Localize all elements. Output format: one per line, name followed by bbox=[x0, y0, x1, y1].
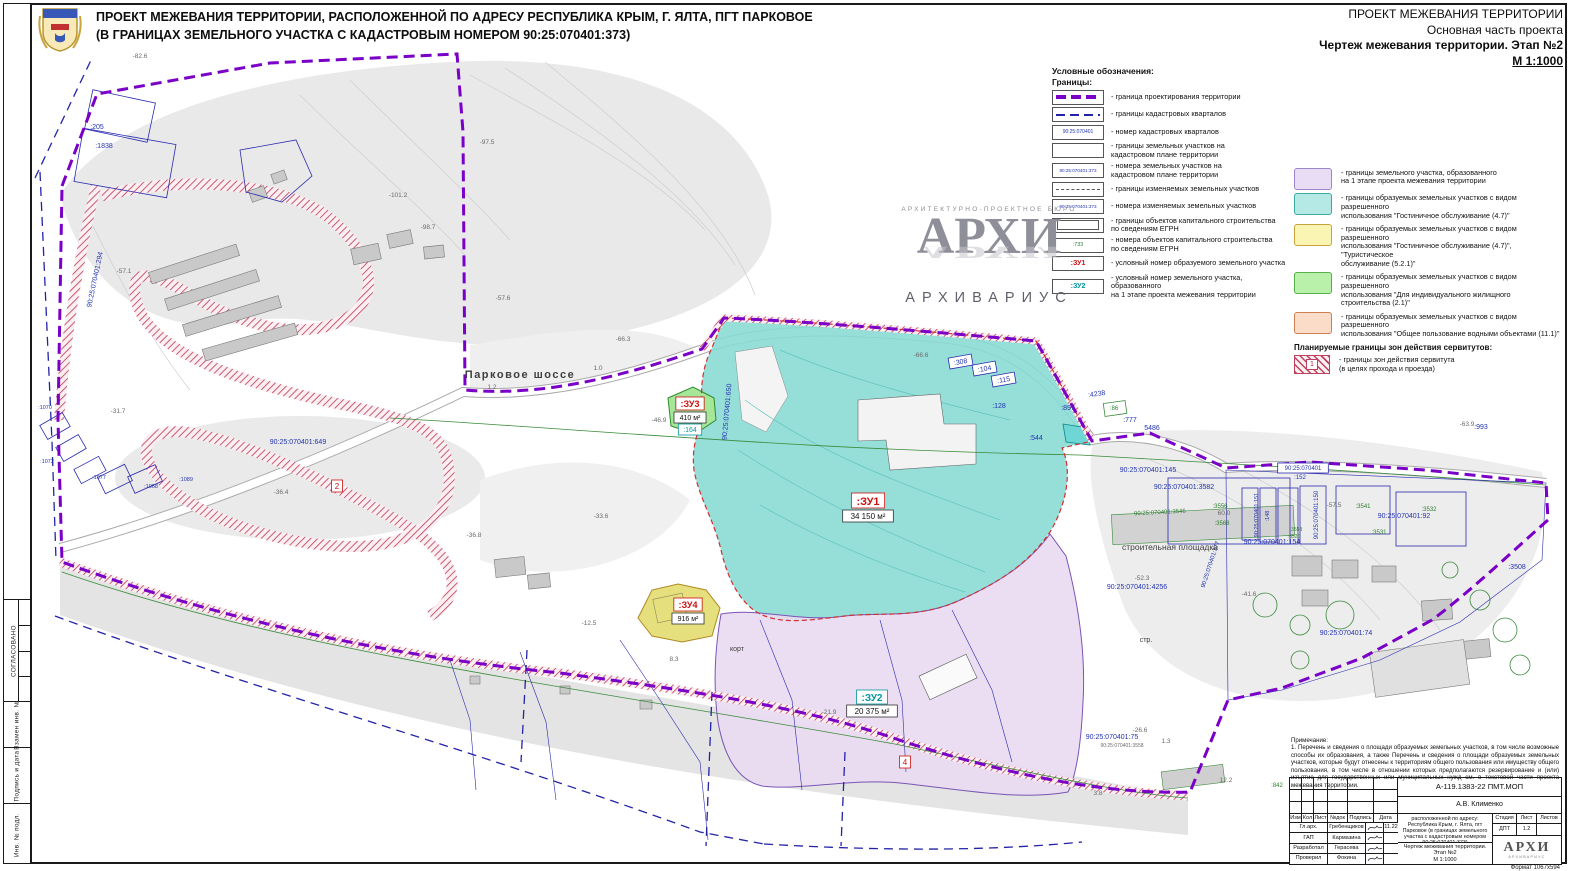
legend-symbol-pdash bbox=[1052, 90, 1104, 105]
map-label: 90:25:070401:74 bbox=[1320, 630, 1373, 637]
legend-area-swatch bbox=[1294, 168, 1332, 190]
map-canvas: :205:183890:25:070401:649:308:104:115:12… bbox=[31, 5, 1566, 862]
format-label: Формат 1067х594 bbox=[1511, 865, 1560, 871]
stamp-empty-cell bbox=[1328, 790, 1348, 802]
strip-label-inv-num: Инв. № подл. bbox=[14, 812, 21, 856]
legend-areas: - границы земельного участка, образованн… bbox=[1294, 164, 1560, 378]
strip-label-approved: СОГЛАСОВАНО bbox=[10, 625, 17, 677]
map-label: 90:25:070401:92 bbox=[1378, 513, 1431, 520]
legend-line-item: - граница проектирования территории bbox=[1052, 90, 1290, 105]
map-label: -31.7 bbox=[111, 408, 126, 415]
map-label: 90:25:070401:154 bbox=[1244, 539, 1301, 546]
strip-cell-inv-num: Инв. № подл. bbox=[4, 803, 30, 865]
legend-line-label: - границы объектов капитального строител… bbox=[1111, 217, 1276, 234]
strip-label-sign-date: Подпись и дата bbox=[14, 750, 21, 801]
stamp-empty-cell bbox=[1374, 790, 1398, 802]
legend-line-item: :ЗУ1- условный номер образуемого земельн… bbox=[1052, 256, 1290, 271]
stamp-empty-cell bbox=[1348, 790, 1374, 802]
legend-area-swatch bbox=[1294, 312, 1332, 334]
legend-symbol-txt: 90:25:070401:373 bbox=[1052, 199, 1104, 214]
stamp-empty-cell bbox=[1302, 778, 1314, 790]
stamp-name: Кармазина bbox=[1328, 833, 1366, 843]
map-label: стр. bbox=[1140, 637, 1153, 644]
map-label: -63.9 bbox=[1460, 421, 1475, 428]
map-label: 1.3 bbox=[1161, 738, 1170, 745]
map-label: :897 bbox=[1061, 405, 1075, 412]
map-label: :3526 bbox=[1288, 534, 1301, 540]
legend-area-item: - границы образуемых земельных участков … bbox=[1294, 193, 1560, 220]
yalta-coat-of-arms bbox=[37, 6, 83, 53]
map-label: :993 bbox=[1474, 424, 1488, 431]
legend-line-label: - условный номер земельного участка, обр… bbox=[1111, 274, 1290, 300]
legend-line-item: - границы кадастровых кварталов bbox=[1052, 107, 1290, 122]
map-label: 410 м² bbox=[680, 415, 701, 422]
stamp-col-header: Изм bbox=[1290, 814, 1302, 823]
stamp-sheet-value: 1.2 bbox=[1517, 824, 1537, 836]
stamp-project: Проект межевания территории, расположенн… bbox=[1398, 814, 1493, 843]
stamp-name: Гребенщиков bbox=[1328, 823, 1366, 833]
stamp-empty-cell bbox=[1314, 790, 1328, 802]
title-left-line1: ПРОЕКТ МЕЖЕВАНИЯ ТЕРРИТОРИИ, РАСПОЛОЖЕНН… bbox=[96, 9, 813, 27]
legend-line-label: - номера земельных участков на кадастров… bbox=[1111, 162, 1222, 179]
strip-label-replace-inv: Взамен инв. № bbox=[14, 700, 21, 749]
map-label: :3532 bbox=[1421, 507, 1437, 513]
map-label: :205 bbox=[90, 124, 104, 131]
map-label: 916 м² bbox=[678, 616, 699, 623]
legend-area-swatch bbox=[1294, 272, 1332, 294]
map-label: -36.8 bbox=[467, 532, 482, 539]
stamp-stage-header: Лист bbox=[1517, 814, 1537, 824]
stamp-date bbox=[1384, 854, 1398, 865]
stamp-date bbox=[1384, 844, 1398, 854]
servitude-zone-number: 1 bbox=[1306, 359, 1318, 370]
map-label: 3.8 bbox=[1093, 790, 1102, 797]
title-right-line3: Чертеж межевания территории. Этап №2 bbox=[1319, 38, 1563, 54]
legend-line-label: - границы кадастровых кварталов bbox=[1111, 110, 1226, 119]
legend-area-item: - границы образуемых земельных участков … bbox=[1294, 224, 1560, 269]
legend-area-swatch bbox=[1294, 224, 1332, 246]
legend-area-label: - границы образуемых земельных участков … bbox=[1341, 193, 1560, 220]
legend-symbol-text: 90:25:070401:373 bbox=[1059, 204, 1096, 209]
stamp-signature bbox=[1366, 833, 1384, 843]
legend-symbol-empty bbox=[1052, 143, 1104, 158]
legend-area-item: - границы образуемых земельных участков … bbox=[1294, 272, 1560, 308]
legend-line-item: - границы объектов капитального строител… bbox=[1052, 217, 1290, 234]
stamp-name: Герасева bbox=[1328, 844, 1366, 854]
legend-line-label: - границы изменяемых земельных участков bbox=[1111, 185, 1259, 194]
map-label: :152 bbox=[1294, 475, 1306, 481]
map-label: -97.5 bbox=[480, 139, 495, 146]
map-label: -12.5 bbox=[582, 620, 597, 627]
title-right-line2: Основная часть проекта bbox=[1319, 23, 1563, 39]
legend-line-item: :ЗУ2- условный номер земельного участка,… bbox=[1052, 274, 1290, 300]
map-label: -41.6 bbox=[1242, 591, 1257, 598]
map-label: -46.9 bbox=[652, 417, 667, 424]
legend-symbol-text: :ЗУ1 bbox=[1071, 260, 1086, 267]
legend-line-label: - номера изменяемых земельных участков bbox=[1111, 202, 1256, 211]
legend-area-label: - границы образуемых земельных участков … bbox=[1341, 224, 1560, 269]
legend-line-item: 90:25:070401:373- номера земельных участ… bbox=[1052, 162, 1290, 179]
map-label: 90:25:070401:3558 bbox=[1100, 743, 1143, 749]
map-label: :148 bbox=[1265, 511, 1271, 522]
stamp-col-header: Подпись bbox=[1348, 814, 1374, 823]
scale-label: М 1:1000 bbox=[1319, 54, 1563, 70]
map-label: :3568 bbox=[1214, 521, 1230, 527]
map-label: :86 bbox=[1110, 406, 1119, 412]
map-label: :1838 bbox=[95, 143, 113, 150]
map-label: 4 bbox=[903, 758, 908, 767]
stamp-empty-cell bbox=[1302, 790, 1314, 802]
stamp-stage-header: Листов bbox=[1537, 814, 1561, 824]
stamp-date bbox=[1384, 833, 1398, 843]
legend-line-item: 90:25:070401:373- номера изменяемых земе… bbox=[1052, 199, 1290, 214]
legend-symbol-text: 90:25:070401:373 bbox=[1059, 168, 1096, 173]
map-label: 8.3 bbox=[669, 656, 678, 663]
map-label: -66.3 bbox=[616, 336, 631, 343]
stamp-logo: АРХИАРХИВАРИУС bbox=[1493, 836, 1561, 864]
map-label: :1089 bbox=[179, 477, 193, 483]
frame-side-strip: СОГЛАСОВАНО Взамен инв. № Подпись и дата… bbox=[3, 3, 31, 864]
legend-symbol-txt: 90:25:070401 bbox=[1052, 125, 1104, 140]
stamp-role: Разработал bbox=[1290, 844, 1328, 854]
map-label: :128 bbox=[992, 403, 1006, 410]
stamp-empty-cell bbox=[1374, 802, 1398, 814]
legend-subtitle: Границы: bbox=[1052, 77, 1290, 88]
stamp-empty-cell bbox=[1328, 802, 1348, 814]
map-label: :3531 bbox=[1371, 530, 1387, 536]
stamp-col-header: №док bbox=[1328, 814, 1348, 823]
map-label: -98.7 bbox=[421, 224, 436, 231]
legend-line-item: - границы изменяемых земельных участков bbox=[1052, 182, 1290, 197]
servitude-swatch: 1 bbox=[1294, 355, 1330, 374]
stamp-empty-cell bbox=[1314, 802, 1328, 814]
stamp-date: 11.22 bbox=[1384, 823, 1398, 833]
map-label: :ЗУ3 bbox=[681, 399, 700, 409]
map-label: :4238 bbox=[1088, 390, 1106, 399]
map-label: корт bbox=[730, 646, 745, 653]
legend-line-item: 90:25:070401- номер кадастровых квартало… bbox=[1052, 125, 1290, 140]
map-label: :164 bbox=[683, 427, 697, 434]
legend-symbol-text: 90:25:070401 bbox=[1063, 129, 1094, 135]
map-label: :ЗУ2 bbox=[862, 693, 883, 704]
stamp-author: А.В. Клименко bbox=[1398, 797, 1561, 814]
map-label: 12.2 bbox=[1220, 777, 1233, 784]
map-label: 1.2 bbox=[487, 384, 496, 391]
map-label: 90:25:070401:75 bbox=[1086, 734, 1139, 741]
legend-lines: Условные обозначения: Границы: - граница… bbox=[1052, 66, 1290, 302]
legend-area-label: - границы земельного участка, образованн… bbox=[1341, 168, 1497, 187]
map-label: :1068 bbox=[144, 484, 158, 490]
map-label: -26.6 bbox=[1133, 727, 1148, 734]
title-right: ПРОЕКТ МЕЖЕВАНИЯ ТЕРРИТОРИИ Основная час… bbox=[1319, 7, 1563, 69]
legend-symbol-text: :733 bbox=[1073, 242, 1084, 248]
stamp-empty-cell bbox=[1314, 778, 1328, 790]
map-label: :1070 bbox=[38, 405, 52, 411]
strip-cell-sign-date: Подпись и дата bbox=[4, 747, 30, 803]
legend-symbol-text: :ЗУ2 bbox=[1071, 283, 1086, 290]
stamp-doc-number: А-119.1383-22 ПМТ.МОП bbox=[1398, 778, 1561, 797]
map-label: 60.0 bbox=[1218, 510, 1231, 517]
map-label: :842 bbox=[1271, 783, 1283, 789]
legend-title: Условные обозначения: bbox=[1052, 66, 1290, 77]
map-label: -57.6 bbox=[496, 295, 511, 302]
legend-area-swatch bbox=[1294, 193, 1332, 215]
legend-line-label: - условный номер образуемого земельного … bbox=[1111, 259, 1285, 268]
map-label: -21.9 bbox=[822, 709, 837, 716]
legend-line-item: - границы земельных участков на кадастро… bbox=[1052, 142, 1290, 159]
map-label: :1072 bbox=[40, 459, 54, 465]
map-label: -82.6 bbox=[133, 53, 148, 60]
legend-area-label: - границы образуемых земельных участков … bbox=[1341, 272, 1560, 308]
servitude-legend-label: - границы зон действия сервитута (в целя… bbox=[1339, 355, 1455, 374]
legend-item-servitude: 1 - границы зон действия сервитута (в це… bbox=[1294, 355, 1560, 374]
legend-area-item: - границы образуемых земельных участков … bbox=[1294, 312, 1560, 339]
map-label: -33.6 bbox=[594, 513, 609, 520]
map-label: :ЗУ4 bbox=[679, 600, 698, 610]
map-label: 90:25:070401:150 bbox=[1314, 490, 1320, 539]
map-label: Парковое шоссе bbox=[465, 369, 575, 381]
stamp-col-header: Дата bbox=[1374, 814, 1398, 823]
stamp-signature bbox=[1366, 854, 1384, 865]
legend-line-label: - номер кадастровых кварталов bbox=[1111, 128, 1219, 137]
stamp-stage-value: ДПТ bbox=[1493, 824, 1517, 836]
stamp-signature bbox=[1366, 823, 1384, 833]
map-label: 20 375 м² bbox=[855, 707, 890, 716]
map-label: 90:25:070401:649 bbox=[270, 439, 327, 446]
map-label: :544 bbox=[1029, 435, 1043, 442]
legend-symbol-txt: :ЗУ2 bbox=[1052, 279, 1104, 294]
stamp-drawing-title: Чертеж межевания территории. Этап №2 М 1… bbox=[1398, 843, 1493, 864]
stamp-role: ГАП bbox=[1290, 833, 1328, 843]
legend-symbol-gdash bbox=[1052, 182, 1104, 197]
stamp-empty-cell bbox=[1328, 778, 1348, 790]
map-label: 1.0 bbox=[593, 365, 602, 372]
stamp-empty-cell bbox=[1348, 802, 1374, 814]
legend-area-label: - границы образуемых земельных участков … bbox=[1341, 312, 1560, 339]
stamp-sheets-value bbox=[1537, 824, 1561, 836]
legend-symbol-txt: 90:25:070401:373 bbox=[1052, 163, 1104, 178]
map-label: -57.5 bbox=[1327, 502, 1342, 509]
stamp-empty-cell bbox=[1302, 802, 1314, 814]
legend-area-item: - границы земельного участка, образованн… bbox=[1294, 168, 1560, 190]
stamp-logo-archivarius: АРХИВАРИУС bbox=[1504, 855, 1551, 859]
map-label: 90:25:070401:3582 bbox=[1154, 484, 1214, 491]
map-label: 90:25:070401 bbox=[1285, 466, 1322, 472]
stamp-role: Гл.арх. bbox=[1290, 823, 1328, 833]
legend-line-label: - границы земельных участков на кадастро… bbox=[1111, 142, 1225, 159]
stamp-name: Фокина bbox=[1328, 854, 1366, 865]
servitude-legend-title: Планируемые границы зон действия сервиту… bbox=[1294, 343, 1560, 352]
map-label: -52.3 bbox=[1135, 575, 1150, 582]
map-label: -36.4 bbox=[274, 489, 289, 496]
stamp-empty-cell bbox=[1290, 802, 1302, 814]
stamp-signature bbox=[1366, 844, 1384, 854]
map-label: :3541 bbox=[1355, 504, 1371, 510]
strip-cell-replace-inv: Взамен инв. № bbox=[4, 701, 30, 747]
stamp-role: Проверил bbox=[1290, 854, 1328, 865]
title-block: Примечание: 1. Перечень и сведения о пло… bbox=[1289, 736, 1561, 864]
title-left: ПРОЕКТ МЕЖЕВАНИЯ ТЕРРИТОРИИ, РАСПОЛОЖЕНН… bbox=[96, 9, 813, 44]
map-label: -66.6 bbox=[914, 352, 929, 359]
legend-line-item: :733- номера объектов капитального строи… bbox=[1052, 236, 1290, 253]
legend-symbol-drect bbox=[1052, 218, 1104, 233]
map-label: 90:25:070401:151 bbox=[1254, 493, 1260, 537]
map-label: 34 150 м² bbox=[851, 512, 886, 521]
map-label: :777 bbox=[1123, 417, 1137, 424]
stamp-empty-cell bbox=[1348, 778, 1374, 790]
map-label: 2 bbox=[335, 482, 340, 491]
legend-line-label: - номера объектов капитального строитель… bbox=[1111, 236, 1273, 253]
stamp-empty-cell bbox=[1290, 790, 1302, 802]
stamp-col-header: Кол bbox=[1302, 814, 1314, 823]
strip-cell-approved: СОГЛАСОВАНО bbox=[4, 599, 30, 701]
map-label: :1077 bbox=[92, 475, 106, 481]
map-label: 5486 bbox=[1144, 425, 1160, 432]
map-label: строительная площадка bbox=[1122, 542, 1218, 552]
note-title: Примечание: bbox=[1291, 737, 1559, 744]
stamp-empty-cell bbox=[1290, 778, 1302, 790]
title-right-line1: ПРОЕКТ МЕЖЕВАНИЯ ТЕРРИТОРИИ bbox=[1319, 7, 1563, 23]
map-label: :3508 bbox=[1508, 564, 1526, 571]
legend-line-label: - граница проектирования территории bbox=[1111, 93, 1241, 102]
map-label: -57.1 bbox=[117, 268, 132, 275]
map-label: 90:25:070401:4256 bbox=[1107, 584, 1167, 591]
legend-symbol-txt: :733 bbox=[1052, 238, 1104, 253]
map-label: -101.2 bbox=[389, 192, 408, 199]
legend-symbol-bdash bbox=[1052, 107, 1104, 122]
stamp-stage-header: Стадия bbox=[1493, 814, 1517, 824]
map-label: 90:25:070401:145 bbox=[1120, 467, 1177, 474]
stamp-empty-cell bbox=[1374, 778, 1398, 790]
title-left-line2: (В ГРАНИЦАХ ЗЕМЕЛЬНОГО УЧАСТКА С КАДАСТР… bbox=[96, 27, 813, 45]
stamp-table: ИзмКолЛист№докПодписьДатаГл.арх.Гребенщи… bbox=[1289, 777, 1562, 865]
legend-symbol-txt: :ЗУ1 bbox=[1052, 256, 1104, 271]
map-label: :ЗУ1 bbox=[856, 496, 879, 508]
stamp-logo-archi: АРХИ bbox=[1504, 841, 1551, 855]
stamp-col-header: Лист bbox=[1314, 814, 1328, 823]
map-label: :3553 bbox=[1290, 527, 1303, 533]
